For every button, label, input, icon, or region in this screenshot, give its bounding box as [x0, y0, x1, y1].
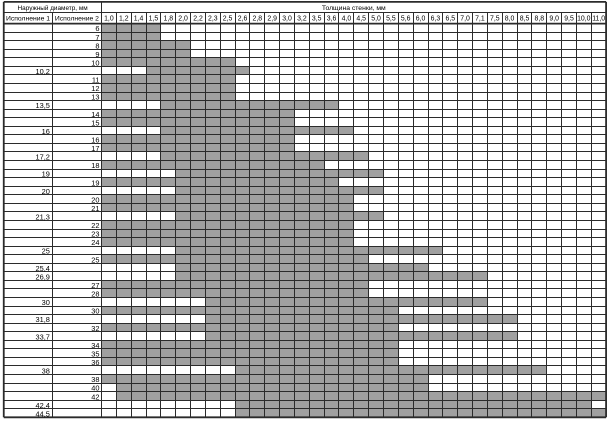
svg-text:20: 20: [42, 187, 50, 196]
svg-text:2,2: 2,2: [193, 16, 203, 23]
svg-text:7,0: 7,0: [460, 16, 470, 23]
svg-text:9,0: 9,0: [549, 16, 559, 23]
svg-text:38: 38: [42, 367, 50, 376]
svg-text:13: 13: [91, 93, 99, 102]
svg-text:28: 28: [91, 290, 99, 299]
svg-text:16: 16: [42, 127, 50, 136]
svg-text:4,5: 4,5: [356, 16, 366, 23]
svg-text:42: 42: [91, 392, 99, 401]
svg-text:24: 24: [91, 238, 99, 247]
svg-text:1,4: 1,4: [134, 16, 144, 23]
svg-text:2,0: 2,0: [178, 16, 188, 23]
svg-text:21,3: 21,3: [36, 213, 50, 222]
svg-text:2,3: 2,3: [208, 16, 218, 23]
svg-text:30: 30: [91, 307, 99, 316]
svg-text:2,6: 2,6: [238, 16, 248, 23]
svg-text:31,8: 31,8: [36, 315, 50, 324]
svg-text:19: 19: [91, 178, 99, 187]
svg-text:3,2: 3,2: [297, 16, 307, 23]
svg-text:3,6: 3,6: [327, 16, 337, 23]
svg-text:5,5: 5,5: [386, 16, 396, 23]
svg-text:25: 25: [91, 255, 99, 264]
svg-text:5,0: 5,0: [371, 16, 381, 23]
svg-text:19: 19: [42, 170, 50, 179]
svg-text:32: 32: [91, 324, 99, 333]
svg-text:8,8: 8,8: [535, 16, 545, 23]
svg-text:8,0: 8,0: [505, 16, 515, 23]
svg-text:25: 25: [42, 247, 50, 256]
svg-text:2,9: 2,9: [267, 16, 277, 23]
svg-text:5,6: 5,6: [401, 16, 411, 23]
svg-text:3,5: 3,5: [312, 16, 322, 23]
svg-text:3,0: 3,0: [282, 16, 292, 23]
svg-text:7,5: 7,5: [490, 16, 500, 23]
svg-text:17,2: 17,2: [36, 153, 50, 162]
svg-text:9,5: 9,5: [564, 16, 574, 23]
svg-text:8,5: 8,5: [520, 16, 530, 23]
svg-text:18: 18: [91, 161, 99, 170]
svg-text:1,2: 1,2: [119, 16, 129, 23]
svg-text:4,0: 4,0: [342, 16, 352, 23]
svg-text:2,8: 2,8: [253, 16, 263, 23]
svg-text:33,7: 33,7: [36, 332, 50, 341]
svg-text:10,0: 10,0: [577, 16, 591, 23]
svg-text:26,9: 26,9: [36, 272, 50, 281]
svg-text:1,5: 1,5: [149, 16, 159, 23]
svg-text:15: 15: [91, 118, 99, 127]
svg-text:44,5: 44,5: [36, 409, 50, 418]
svg-text:7,1: 7,1: [475, 16, 485, 23]
svg-text:Исполнение 2: Исполнение 2: [55, 16, 99, 23]
svg-text:36: 36: [91, 358, 99, 367]
svg-text:Исполнение 1: Исполнение 1: [6, 16, 50, 23]
svg-text:1,8: 1,8: [164, 16, 174, 23]
svg-text:6,0: 6,0: [416, 16, 426, 23]
svg-text:30: 30: [42, 298, 50, 307]
svg-text:6,3: 6,3: [431, 16, 441, 23]
svg-text:10,2: 10,2: [36, 67, 50, 76]
svg-text:10: 10: [91, 58, 99, 67]
svg-text:Толщина стенки, мм: Толщина стенки, мм: [322, 5, 386, 12]
svg-text:17: 17: [91, 144, 99, 153]
svg-text:2,5: 2,5: [223, 16, 233, 23]
svg-text:13,5: 13,5: [36, 101, 50, 110]
svg-text:21: 21: [91, 204, 99, 213]
svg-text:1,0: 1,0: [104, 16, 114, 23]
svg-text:6,5: 6,5: [446, 16, 456, 23]
svg-text:Наружный диаметр, мм: Наружный диаметр, мм: [18, 4, 88, 12]
svg-text:11,0: 11,0: [592, 16, 605, 23]
